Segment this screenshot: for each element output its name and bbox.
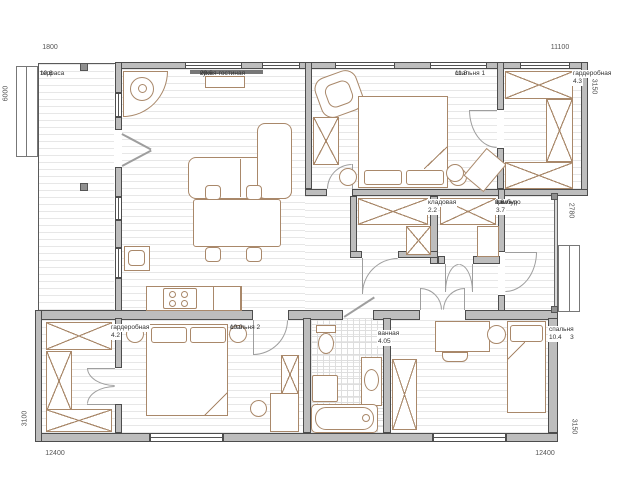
bedroom3-blanket-fold [507, 342, 525, 360]
dim-bottom-right: 12400 [520, 450, 570, 457]
room-area: 10.9 [230, 324, 243, 332]
room-area: 10.4 [548, 334, 563, 342]
bedroom3-stool [442, 352, 468, 362]
bedroom1-chair [446, 164, 464, 182]
room-area: 4.05 [377, 338, 392, 346]
dining-chair [246, 185, 262, 200]
terrace-post [80, 63, 88, 71]
wardrobe1-cabinet [546, 99, 573, 162]
room-label-bathroom: ванная 4.05 [320, 330, 377, 338]
fireplace-flue-dot [138, 84, 147, 93]
nightstand [339, 168, 357, 186]
dim-left-upper: 6000 [3, 74, 10, 114]
vestibule-door-leaf [445, 264, 446, 292]
porch-rail [554, 196, 558, 312]
wall-bottom [223, 433, 433, 442]
terrace-step-line [26, 66, 27, 157]
wardrobe2-cabinet [46, 351, 72, 411]
entrance-door-leaf [505, 252, 537, 253]
terrace-steps [16, 66, 38, 157]
kitchen-cabinet [213, 286, 241, 311]
bedroom1-wardrobe-cabinet [313, 117, 339, 165]
porch-post [551, 193, 558, 200]
terrace-edge [38, 63, 115, 313]
wall-storage-bottom [350, 251, 362, 258]
dining-chair [205, 185, 221, 200]
room-area: 4.3 [572, 78, 583, 86]
room-area: 29.6 [200, 70, 213, 78]
bedroom3-door-leaf [420, 288, 421, 310]
porch-post [551, 306, 558, 313]
sofa-chaise [257, 123, 292, 199]
vestibule-cabinet [477, 226, 499, 257]
wardrobe1-cabinet [505, 162, 573, 189]
bedroom2-pillow [190, 327, 226, 343]
window [185, 62, 242, 69]
dim-top-left: 1800 [25, 44, 75, 51]
wall-left-main [115, 117, 122, 130]
vestibule-door-leaf [472, 264, 473, 292]
room-area: 3.6 [495, 199, 504, 207]
stove [163, 288, 197, 309]
wall-left-main [115, 220, 122, 248]
wall-mid-lower [465, 310, 558, 320]
wall-mid-lower [373, 310, 420, 320]
dining-table [193, 199, 281, 247]
dim-bottom-left: 12400 [30, 450, 80, 457]
dim-right-upper: 3150 [591, 67, 598, 107]
wardrobe2-cabinet [46, 409, 112, 432]
window [520, 62, 570, 69]
window [115, 93, 122, 117]
wall-left-main [115, 62, 122, 93]
bedroom3-wardrobe-cabinet [392, 359, 417, 430]
wall-mid-upper [305, 189, 327, 196]
bedroom3-desk [435, 321, 490, 352]
room-label-vestibule: тамбур 3.7 [430, 199, 495, 207]
bedroom2-blanket-fold [204, 392, 228, 416]
room-name: ванная [377, 330, 400, 338]
wall-bottom [506, 433, 558, 442]
window [262, 62, 300, 69]
washing-machine [312, 375, 338, 402]
storage-shelf [406, 226, 431, 255]
wall-bottom [35, 433, 150, 442]
stove-burner [169, 291, 176, 298]
room-label-wardrobe2: гардеробная 4.2 [45, 324, 110, 332]
room-label-wardrobe1: гардеробная 4.3 [500, 70, 572, 78]
dining-chair [205, 247, 221, 262]
wall-mid-lower [288, 310, 343, 320]
window [335, 62, 395, 69]
window [115, 248, 122, 278]
wall-left-main [115, 167, 122, 197]
stove-burner [181, 291, 188, 298]
window [150, 433, 223, 442]
wardrobe1-door-leaf [469, 110, 497, 111]
wall-vestibule-bottom [473, 256, 500, 264]
wall-vestibule-bottom [438, 256, 445, 264]
room-label-storage: кладовая 2.2 [355, 199, 427, 207]
wall-bedroom2-bathroom [303, 318, 311, 433]
bedroom1-blanket-fold [424, 146, 448, 169]
dim-top-right: 11100 [535, 44, 585, 51]
stove-burner [181, 300, 188, 307]
kitchen-sink-bowl [128, 250, 145, 266]
armchair-seat [323, 78, 356, 109]
terrace-post [80, 183, 88, 191]
bathtub-drain [362, 414, 370, 422]
dim-left-lower: 3100 [22, 399, 29, 439]
bedroom2-pillow [151, 327, 187, 343]
bedroom2-cabinet [281, 355, 299, 394]
wall-left-lower [35, 310, 42, 442]
room-area: 11.8 [455, 70, 467, 78]
bathroom-sink-bowl [364, 369, 379, 391]
stove-burner [169, 300, 176, 307]
storage-door-leaf [362, 258, 363, 294]
wardrobe2-door-leaf [87, 368, 115, 369]
dining-chair [246, 247, 262, 262]
room-area: 10.8 [40, 70, 53, 78]
bedroom2-desk [270, 393, 299, 432]
wall-living-bedroom1 [305, 62, 312, 189]
room-area: 3.7 [495, 207, 506, 215]
wall-mid-lower [35, 310, 253, 320]
room-area: 4.2 [110, 332, 121, 340]
wall-wardrobe2-bedroom2 [115, 404, 122, 433]
room-area: 2.2 [427, 207, 438, 215]
dim-right-middle: 2780 [568, 191, 575, 231]
room-name: гардеробная [110, 324, 150, 332]
dim-right-lower: 3150 [571, 407, 578, 447]
bedroom2-chair [250, 400, 267, 417]
bedroom3-door-leaf [464, 288, 465, 310]
bedroom1-pillow [406, 170, 444, 185]
sofa-cushion-line [240, 159, 241, 197]
porch-step-line [569, 245, 570, 312]
window [433, 433, 506, 442]
window [430, 62, 487, 69]
room-label-bedroom3: спальня 3 10.4 [495, 326, 548, 334]
wardrobe2-door-leaf [87, 404, 115, 405]
bedroom1-pillow [364, 170, 402, 185]
window [115, 197, 122, 220]
floor-plan: терраса 10.8 кухня-гостиная 29.6 спальня… [0, 0, 626, 502]
